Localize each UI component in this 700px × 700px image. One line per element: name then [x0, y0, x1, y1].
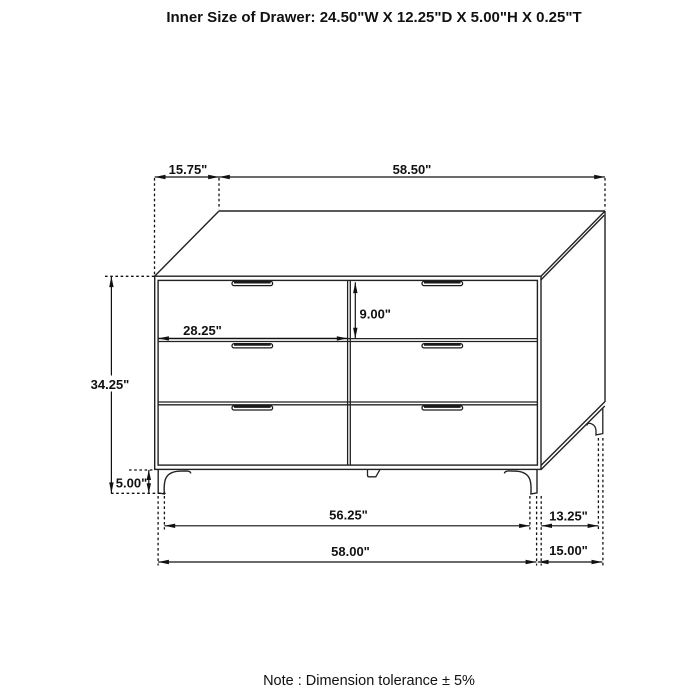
svg-text:15.75": 15.75" [169, 162, 208, 177]
svg-text:9.00": 9.00" [360, 307, 391, 322]
svg-text:13.25": 13.25" [549, 509, 588, 524]
svg-text:58.00": 58.00" [331, 544, 370, 559]
svg-text:56.25": 56.25" [329, 508, 368, 523]
svg-text:Note : Dimension tolerance ±: Note : Dimension tolerance ± 5% [263, 673, 475, 689]
svg-text:15.00": 15.00" [549, 543, 588, 558]
svg-text:5.00": 5.00" [116, 476, 147, 491]
svg-text:28.25": 28.25" [183, 323, 222, 338]
svg-text:58.50": 58.50" [393, 162, 432, 177]
svg-text:Inner Size of Drawer: 24.50"W: Inner Size of Drawer: 24.50"W X 12.25"D … [166, 9, 581, 26]
svg-text:34.25": 34.25" [91, 377, 130, 392]
